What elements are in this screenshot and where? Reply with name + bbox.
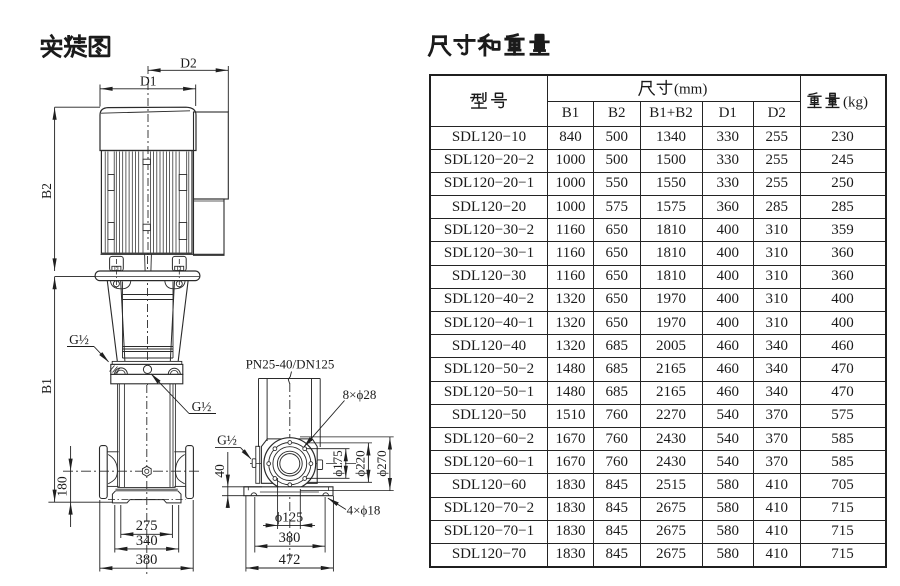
svg-text:ϕ175: ϕ175	[330, 450, 345, 476]
svg-text:G½: G½	[217, 433, 237, 448]
svg-text:380: 380	[279, 530, 301, 546]
svg-text:PN25-40/DN125: PN25-40/DN125	[246, 357, 335, 372]
svg-text:340: 340	[136, 533, 158, 549]
svg-text:40: 40	[212, 464, 227, 478]
svg-text:ϕ125: ϕ125	[275, 510, 303, 525]
svg-text:4×ϕ18: 4×ϕ18	[347, 503, 381, 518]
svg-text:ϕ270: ϕ270	[374, 450, 389, 476]
svg-text:ϕ220: ϕ220	[352, 450, 367, 476]
svg-text:180: 180	[55, 476, 70, 497]
svg-text:(kg): (kg)	[843, 94, 868, 110]
svg-text:G½: G½	[69, 332, 89, 347]
svg-text:(mm): (mm)	[674, 82, 707, 98]
svg-text:D2: D2	[180, 56, 197, 71]
svg-text:8×ϕ28: 8×ϕ28	[343, 387, 377, 402]
svg-text:B2: B2	[39, 183, 54, 199]
svg-text:G½: G½	[192, 399, 212, 414]
svg-text:B1: B1	[39, 378, 54, 394]
svg-text:275: 275	[136, 518, 158, 534]
svg-text:D1: D1	[140, 74, 157, 89]
svg-text:380: 380	[136, 552, 158, 568]
svg-text:472: 472	[279, 552, 301, 568]
